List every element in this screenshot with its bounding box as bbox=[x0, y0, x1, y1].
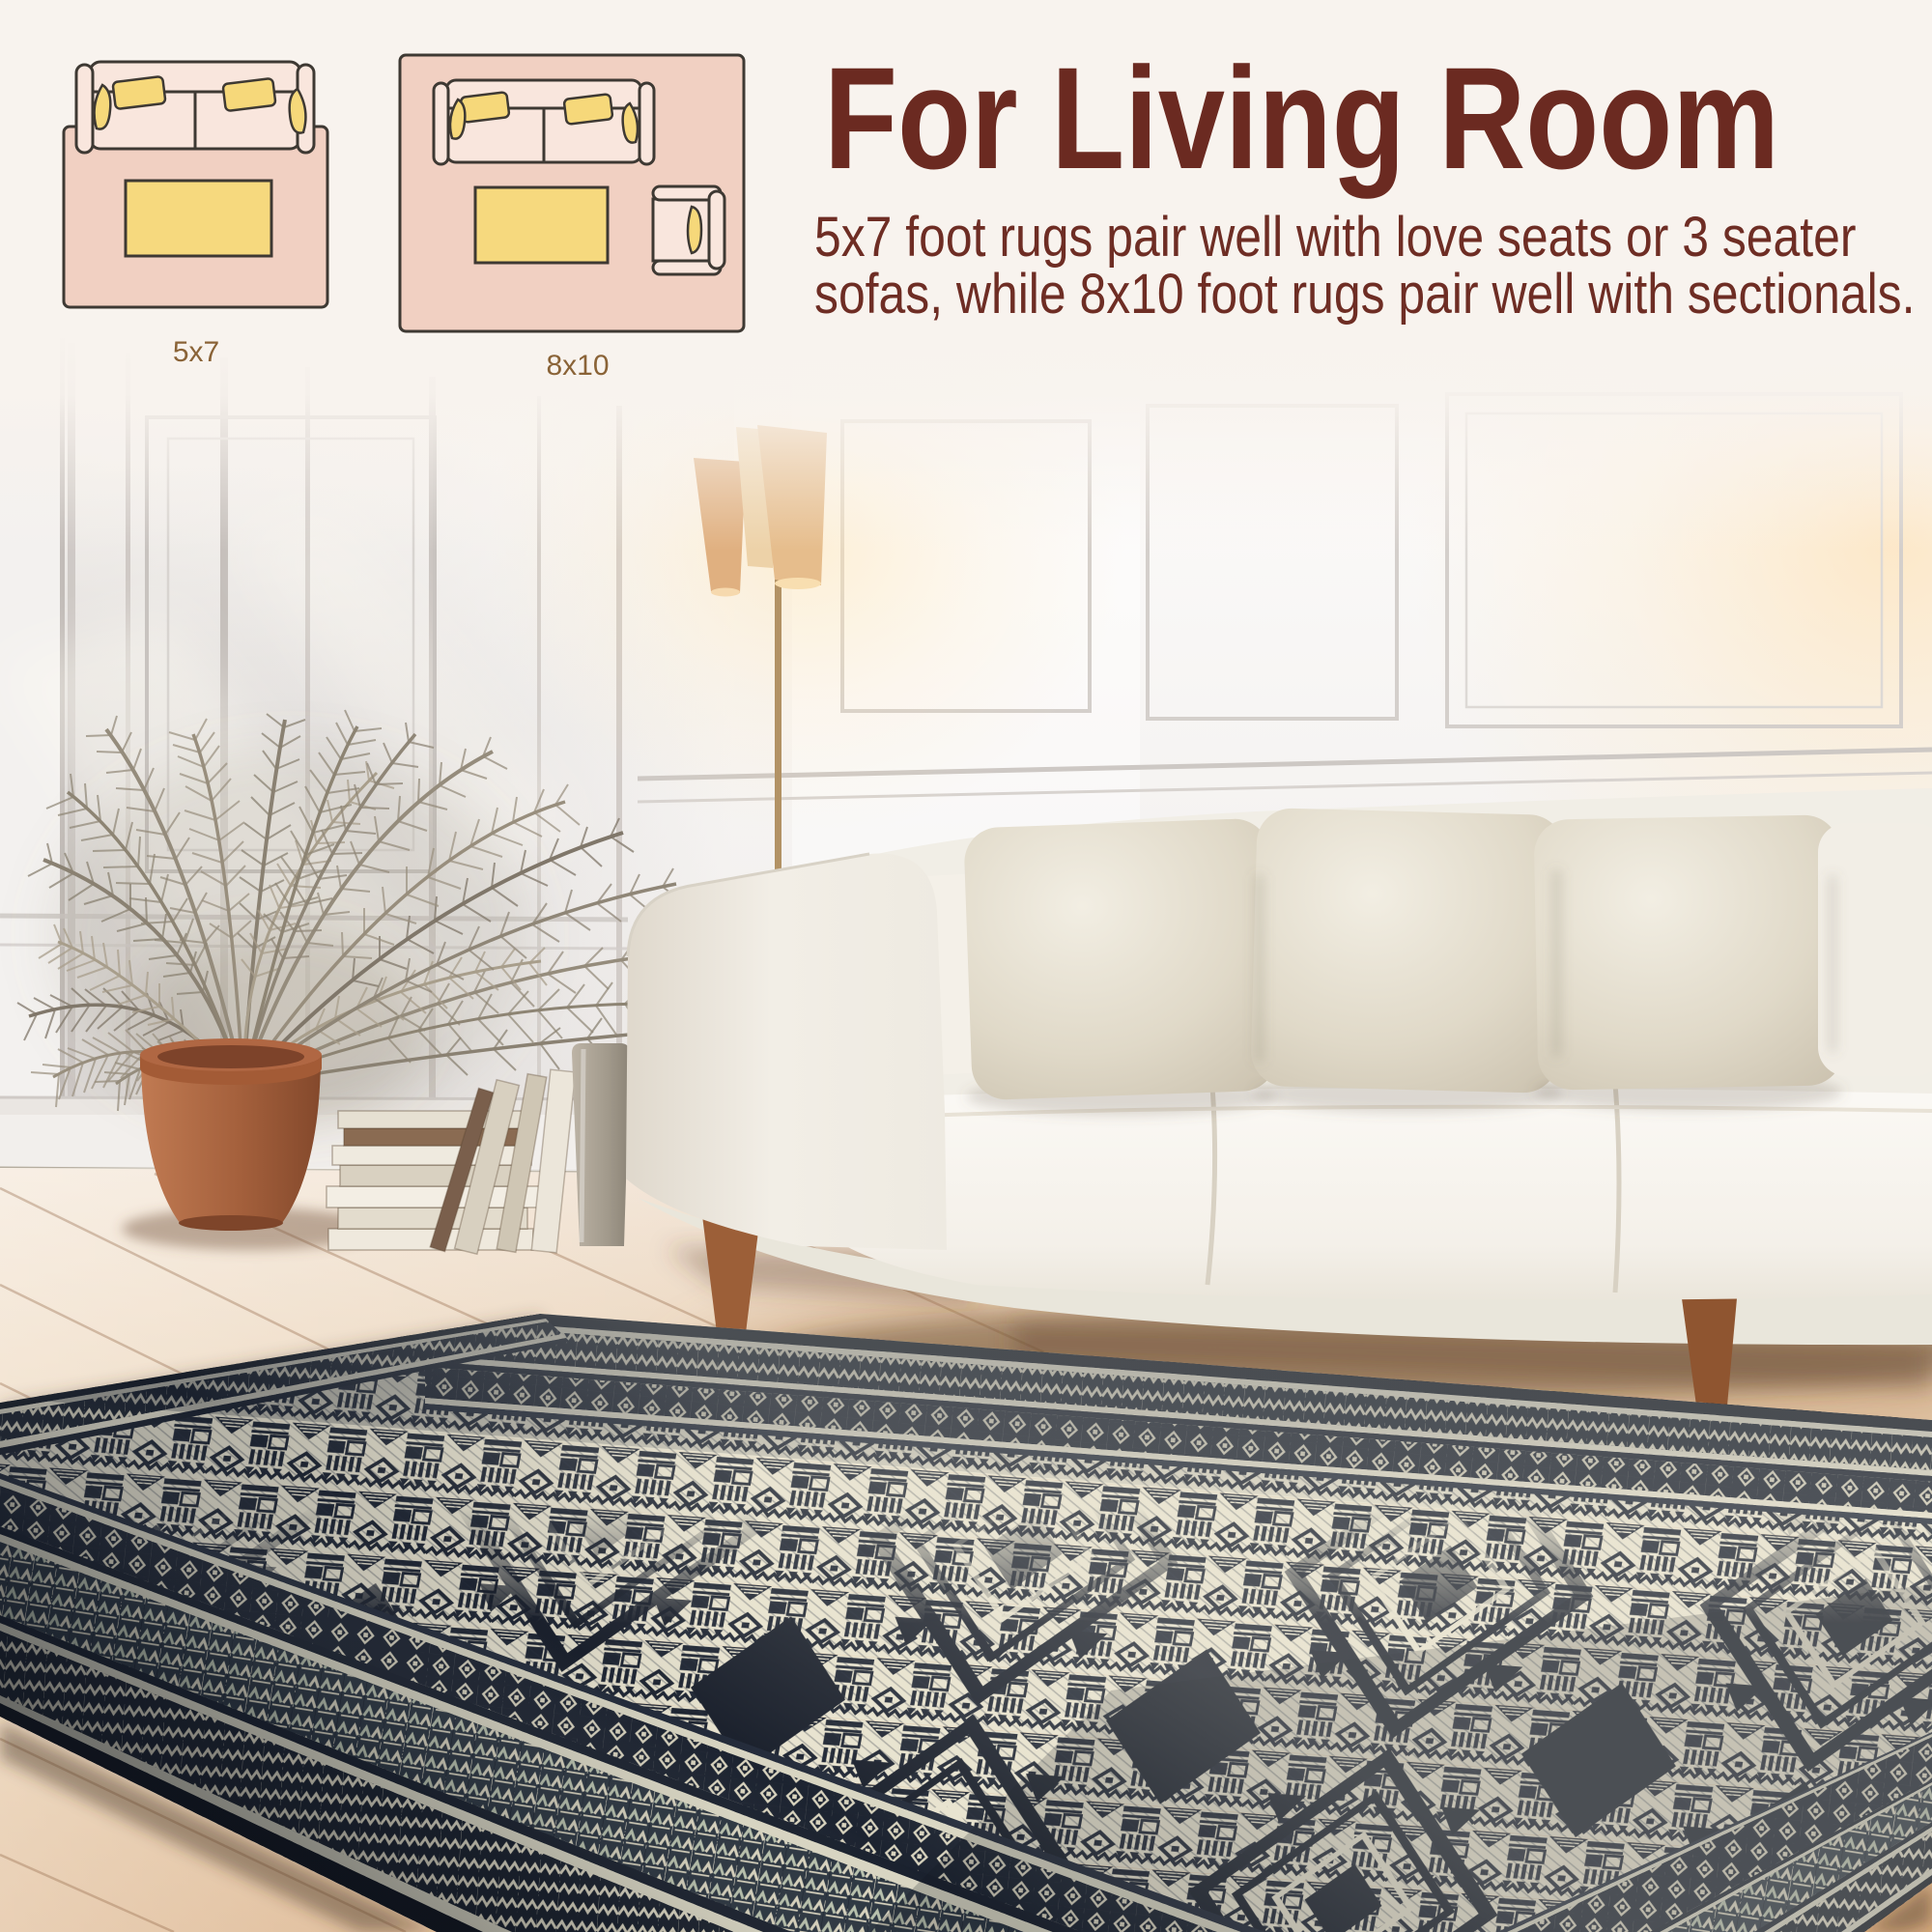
svg-text:5x7: 5x7 bbox=[173, 336, 219, 368]
svg-text:8x10: 8x10 bbox=[546, 350, 609, 382]
